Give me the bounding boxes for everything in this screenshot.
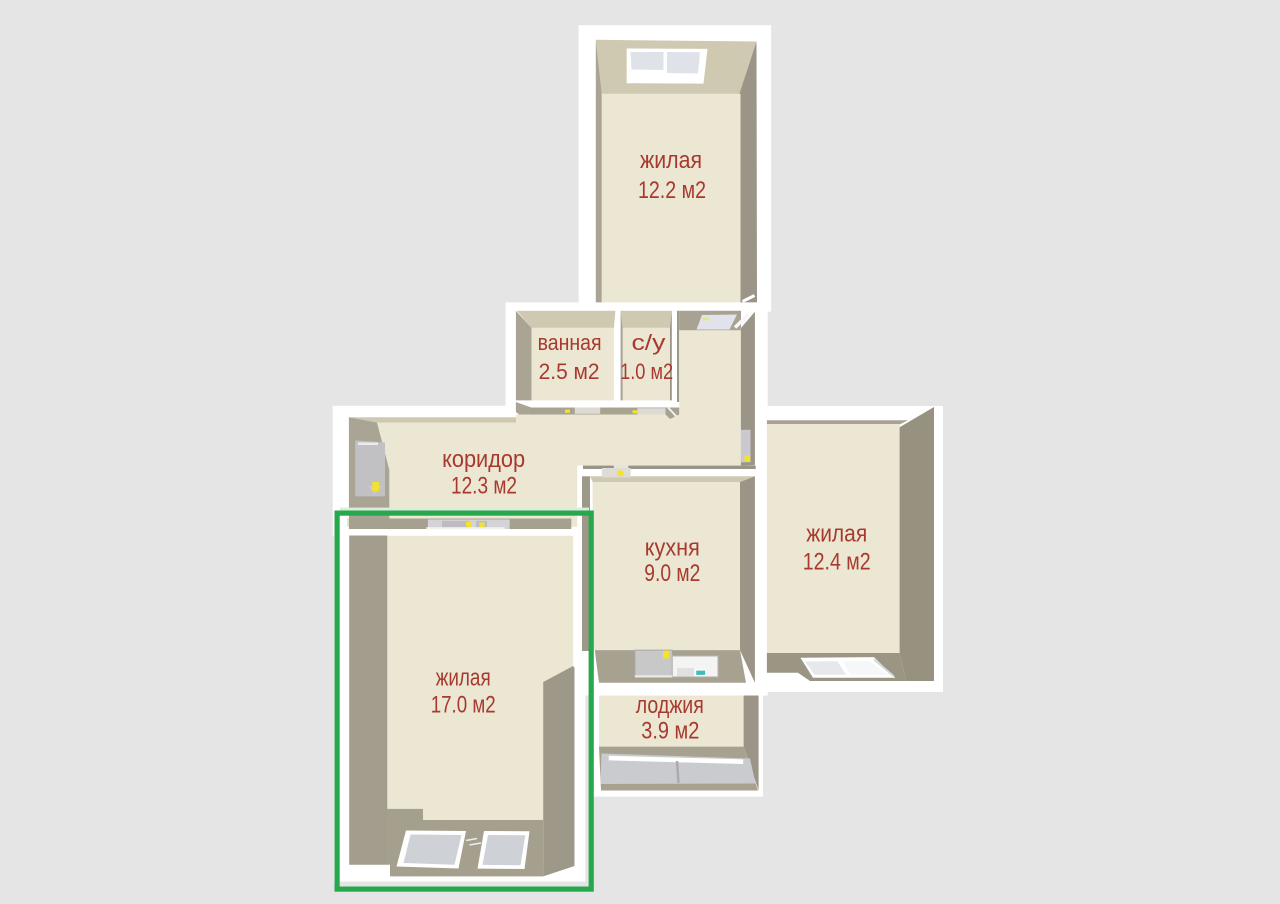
svg-text:12.4 м2: 12.4 м2: [803, 549, 871, 576]
svg-text:с/у: с/у: [632, 330, 666, 355]
svg-text:2.5 м2: 2.5 м2: [539, 359, 600, 384]
svg-text:лоджия: лоджия: [636, 692, 704, 719]
svg-text:коридор: коридор: [442, 446, 525, 473]
svg-text:жилая: жилая: [806, 521, 867, 548]
svg-text:1.0 м2: 1.0 м2: [620, 359, 673, 384]
svg-text:кухня: кухня: [645, 534, 700, 561]
svg-text:3.9 м2: 3.9 м2: [641, 718, 699, 745]
svg-text:12.3 м2: 12.3 м2: [451, 473, 517, 500]
svg-text:12.2 м2: 12.2 м2: [638, 177, 706, 204]
svg-text:17.0 м2: 17.0 м2: [431, 692, 496, 719]
svg-text:9.0 м2: 9.0 м2: [644, 560, 700, 587]
svg-text:ванная: ванная: [538, 330, 602, 355]
svg-text:жилая: жилая: [640, 147, 702, 174]
svg-text:жилая: жилая: [436, 664, 491, 691]
